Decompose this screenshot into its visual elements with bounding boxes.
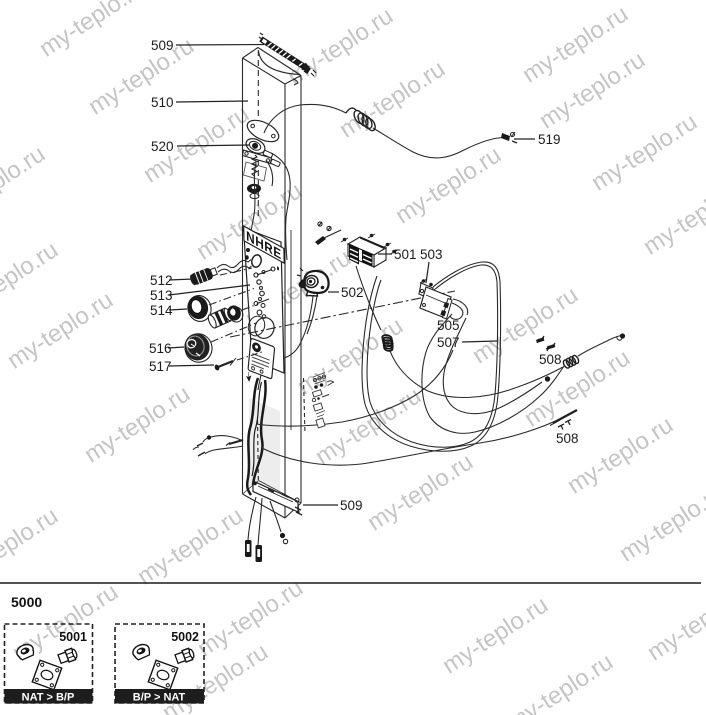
svg-text:my-teplo.ru: my-teplo.ru	[468, 281, 583, 369]
svg-text:5002: 5002	[171, 630, 199, 644]
svg-text:my-teplo.ru: my-teplo.ru	[133, 502, 248, 590]
svg-text:my-teplo.ru: my-teplo.ru	[363, 448, 478, 536]
svg-text:510: 510	[151, 95, 174, 110]
svg-text:my-teplo.ru: my-teplo.ru	[35, 0, 150, 62]
svg-text:5000: 5000	[11, 594, 42, 610]
svg-text:my-teplo.ru: my-teplo.ru	[643, 578, 706, 666]
svg-text:my-teplo.ru: my-teplo.ru	[0, 140, 50, 228]
svg-text:my-teplo.ru: my-teplo.ru	[283, 2, 398, 90]
svg-text:my-teplo.ru: my-teplo.ru	[391, 141, 506, 229]
svg-text:my-teplo.ru: my-teplo.ru	[335, 55, 450, 143]
svg-text:501: 501	[394, 247, 417, 262]
svg-text:509: 509	[340, 498, 363, 513]
svg-text:520: 520	[151, 139, 174, 154]
svg-text:503: 503	[420, 247, 443, 262]
svg-text:my-teplo.ru: my-teplo.ru	[84, 32, 199, 120]
svg-text:my-teplo.ru: my-teplo.ru	[438, 591, 553, 679]
svg-text:509: 509	[151, 38, 174, 53]
svg-text:my-teplo.ru: my-teplo.ru	[615, 479, 706, 567]
svg-text:my-teplo.ru: my-teplo.ru	[3, 286, 118, 374]
svg-text:505: 505	[437, 318, 460, 333]
svg-text:my-teplo.ru: my-teplo.ru	[80, 380, 195, 468]
svg-text:519: 519	[538, 132, 561, 147]
svg-text:my-teplo.ru: my-teplo.ru	[587, 108, 702, 196]
svg-text:517: 517	[149, 359, 172, 374]
svg-text:my-teplo.ru: my-teplo.ru	[503, 648, 618, 715]
svg-text:NAT > B/P: NAT > B/P	[22, 692, 75, 704]
svg-text:my-teplo.ru: my-teplo.ru	[0, 502, 63, 590]
svg-text:B/P > NAT: B/P > NAT	[133, 692, 186, 704]
svg-text:my-teplo.ru: my-teplo.ru	[639, 172, 706, 260]
svg-text:5001: 5001	[59, 630, 87, 644]
svg-text:502: 502	[341, 285, 364, 300]
svg-text:my-teplo.ru: my-teplo.ru	[563, 411, 678, 499]
svg-text:my-teplo.ru: my-teplo.ru	[0, 236, 63, 324]
svg-text:507: 507	[437, 335, 460, 350]
svg-text:508: 508	[539, 352, 562, 367]
svg-text:508: 508	[556, 431, 579, 446]
